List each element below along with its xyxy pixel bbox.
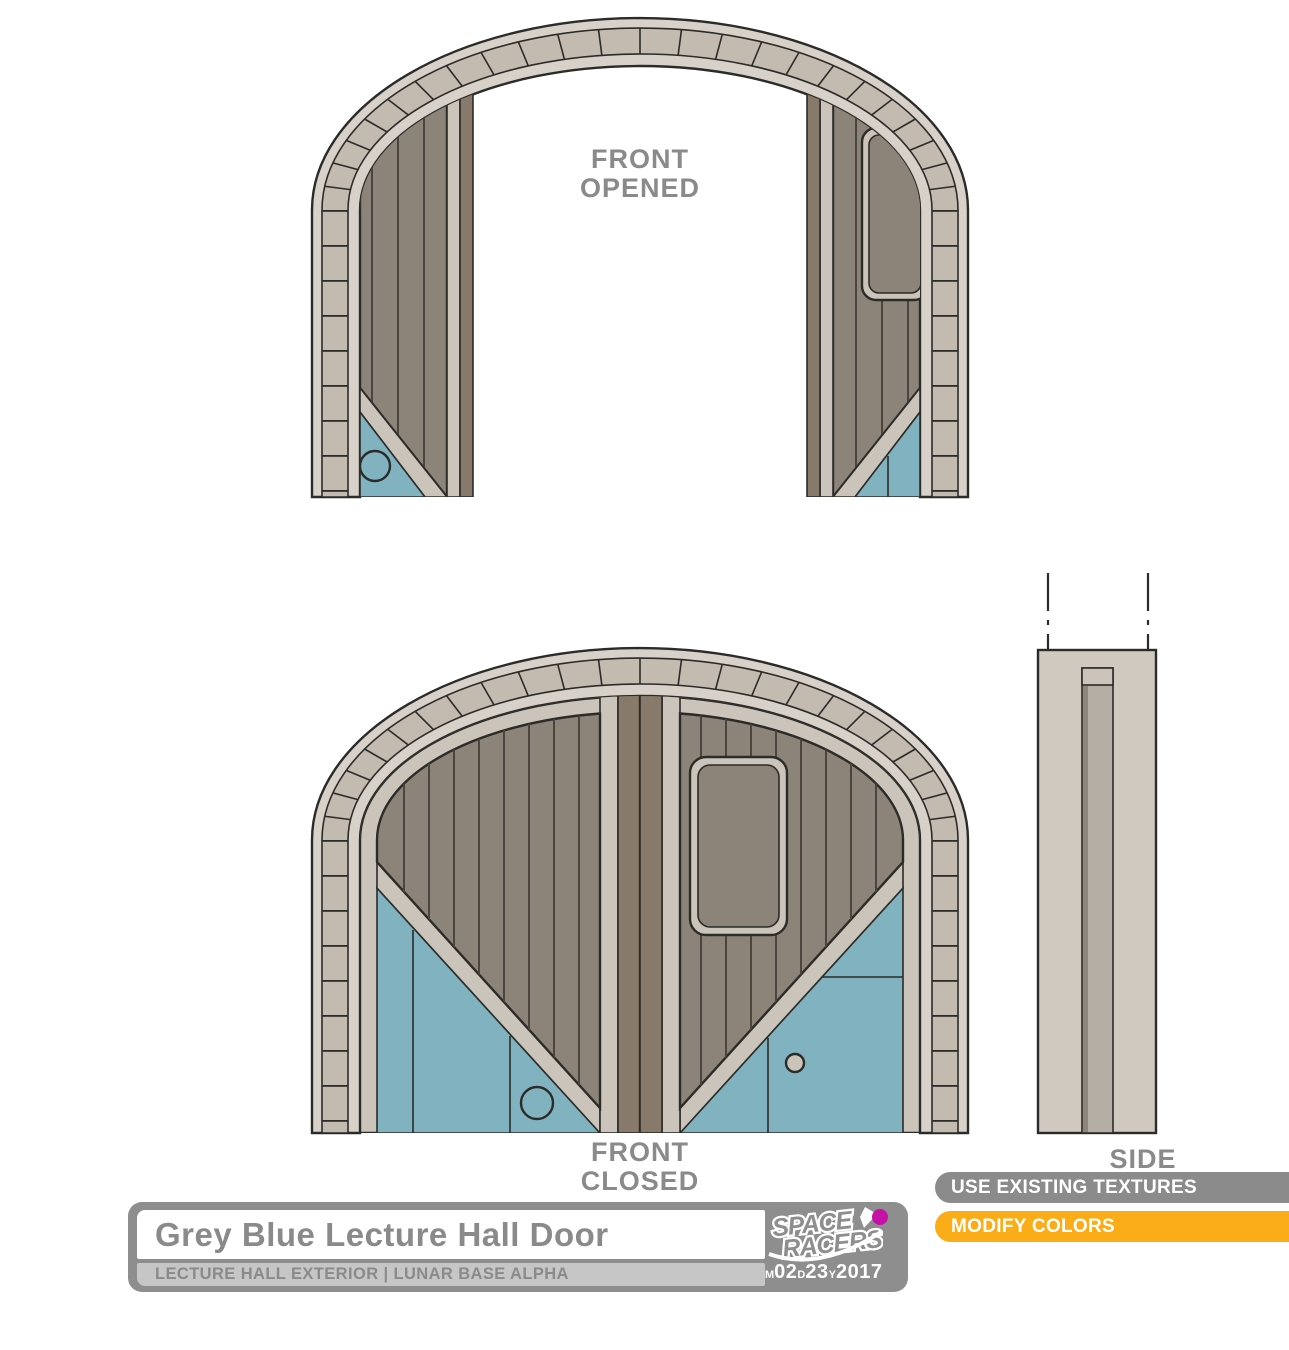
use-existing-textures-banner: USE EXISTING TEXTURES xyxy=(935,1172,1289,1203)
door-edge-strip xyxy=(460,60,473,497)
modify-colors-banner: MODIFY COLORS xyxy=(935,1211,1289,1242)
revision-dot xyxy=(872,1209,888,1225)
page-title: Grey Blue Lecture Hall Door xyxy=(155,1216,609,1254)
month-label: M xyxy=(765,1269,774,1281)
side-view: SIDE xyxy=(1038,573,1177,1174)
door-edge-strip xyxy=(807,60,820,497)
day-value: 23 xyxy=(805,1261,828,1283)
view-label: OPENED xyxy=(580,173,700,203)
view-label: FRONT xyxy=(591,1137,689,1167)
door-edge-strip xyxy=(618,690,640,1133)
date-stamp: M02D23Y2017 xyxy=(765,1261,882,1284)
porthole-window xyxy=(690,757,787,935)
front-closed-view: FRONT CLOSED xyxy=(312,648,968,1196)
view-label: SIDE xyxy=(1109,1144,1176,1174)
year-value: 2017 xyxy=(836,1261,883,1283)
title-panel: Grey Blue Lecture Hall Door xyxy=(137,1210,765,1259)
view-label: FRONT xyxy=(591,144,689,174)
view-label: CLOSED xyxy=(581,1166,700,1196)
front-opened-view: FRONT OPENED xyxy=(312,18,968,497)
subtitle-panel: LECTURE HALL EXTERIOR | LUNAR BASE ALPHA xyxy=(137,1263,765,1286)
door-edge-strip xyxy=(640,690,662,1133)
side-slot-cap xyxy=(1082,668,1113,685)
space-racers-logo: SPACE RACERS xyxy=(765,1204,883,1262)
year-label: Y xyxy=(829,1269,836,1281)
drawing-canvas: FRONT OPENED xyxy=(0,0,1289,1350)
month-value: 02 xyxy=(774,1261,797,1283)
door-knob xyxy=(786,1054,804,1072)
title-block: Grey Blue Lecture Hall Door LECTURE HALL… xyxy=(128,1202,908,1292)
subtitle: LECTURE HALL EXTERIOR | LUNAR BASE ALPHA xyxy=(155,1265,569,1284)
